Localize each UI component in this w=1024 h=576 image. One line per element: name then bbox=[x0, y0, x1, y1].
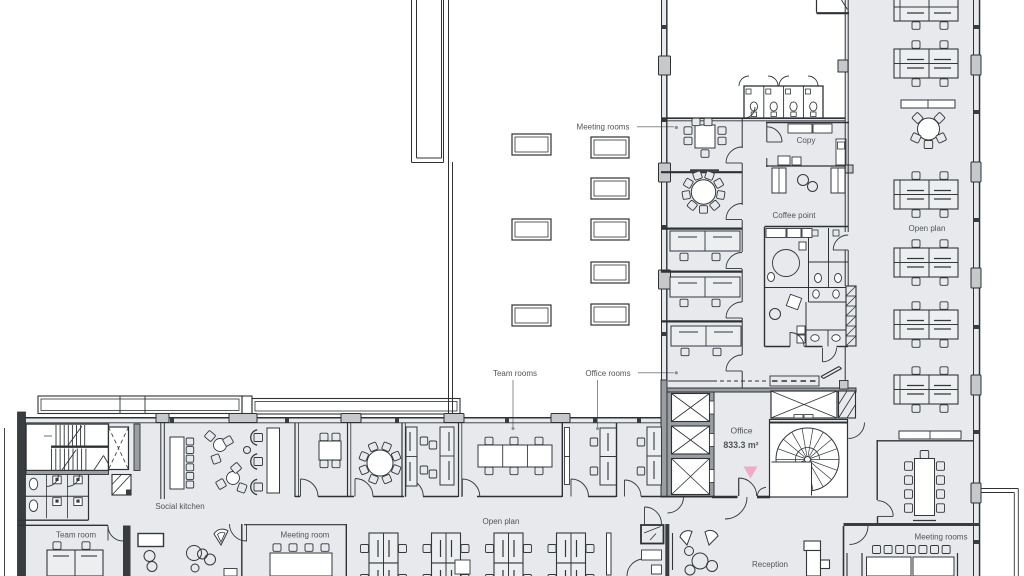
svg-text:Meeting room: Meeting room bbox=[281, 531, 330, 540]
svg-text:833.3 m²: 833.3 m² bbox=[723, 440, 758, 450]
svg-text:Meeting rooms: Meeting rooms bbox=[577, 123, 630, 132]
svg-text:Meeting rooms: Meeting rooms bbox=[915, 533, 968, 542]
svg-text:Office: Office bbox=[730, 426, 752, 436]
svg-text:Social kitchen: Social kitchen bbox=[155, 502, 204, 511]
svg-text:Open plan: Open plan bbox=[909, 224, 946, 233]
svg-text:Office rooms: Office rooms bbox=[585, 369, 630, 378]
svg-text:Coffee point: Coffee point bbox=[773, 211, 817, 220]
svg-text:Reception: Reception bbox=[752, 560, 788, 569]
svg-text:Team room: Team room bbox=[56, 531, 96, 540]
svg-text:Copy: Copy bbox=[797, 136, 816, 145]
svg-text:Open plan: Open plan bbox=[483, 517, 520, 526]
svg-text:Team rooms: Team rooms bbox=[493, 369, 537, 378]
